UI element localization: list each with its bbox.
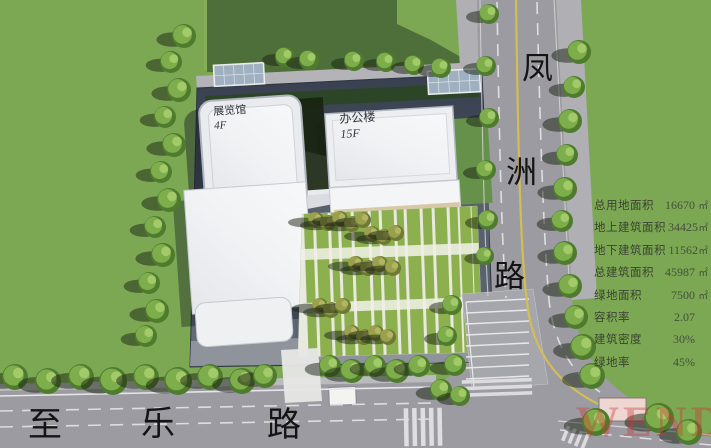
fengzhou-road-label-char: 洲 <box>506 157 537 188</box>
stat-unit: ㎡ <box>698 243 708 257</box>
stat-unit: ㎡ <box>695 198 708 212</box>
exhibition-hall-label: 展览馆 4F <box>213 104 248 133</box>
zhile-road-label-char: 路 <box>267 409 301 443</box>
stat-unit: ㎡ <box>695 288 708 302</box>
stat-row: 总用地面积16670㎡ <box>594 197 708 219</box>
fengzhou-road-label-char: 凤 <box>522 53 553 84</box>
stat-label: 容积率 <box>594 309 663 325</box>
stat-label: 总用地面积 <box>594 197 663 213</box>
site-plan-rendering: 凤 洲 路 至 乐 路 展览馆 4F 办公楼 15F 总用地面积16670㎡ 地… <box>0 0 711 448</box>
stat-value: 11562 <box>666 243 698 258</box>
zhile-road-label-char: 乐 <box>141 408 175 442</box>
office-building-floors: 15F <box>340 125 377 142</box>
stat-value: 2.07 <box>663 310 695 325</box>
exhibition-hall-name: 展览馆 <box>213 104 247 120</box>
stat-unit: ㎡ <box>698 220 708 234</box>
office-building-label: 办公楼 15F <box>339 110 377 142</box>
stat-row: 地下建筑面积11562㎡ <box>594 242 708 264</box>
office-building-name: 办公楼 <box>339 110 376 127</box>
fengzhou-road-label-char: 路 <box>494 261 525 292</box>
stat-row: 绿地率45% <box>594 354 708 376</box>
stat-row: 绿地面积7500㎡ <box>594 287 708 309</box>
stat-label: 建筑密度 <box>594 331 663 347</box>
stat-value: 45987 <box>663 265 695 280</box>
stat-label: 绿地面积 <box>594 287 663 303</box>
stat-value: 45% <box>663 355 695 370</box>
bus-shelter <box>213 63 264 87</box>
stat-value: 34425 <box>666 220 698 235</box>
watermark: WEND <box>576 398 711 447</box>
stat-label: 绿地率 <box>594 354 663 370</box>
exhibition-hall-floors: 4F <box>214 118 248 134</box>
stat-label: 地上建筑面积 <box>594 219 666 235</box>
project-statistics: 总用地面积16670㎡ 地上建筑面积34425㎡ 地下建筑面积11562㎡ 总建… <box>594 197 708 376</box>
stat-label: 总建筑面积 <box>594 264 663 280</box>
zhile-road-label-char: 至 <box>28 409 62 443</box>
stat-value: 30% <box>663 332 695 347</box>
stat-row: 总建筑面积45987㎡ <box>594 264 708 286</box>
stat-row: 地上建筑面积34425㎡ <box>594 219 708 241</box>
stat-value: 16670 <box>663 198 695 213</box>
stat-row: 容积率2.07 <box>594 309 708 331</box>
stat-label: 地下建筑面积 <box>594 242 666 258</box>
stat-row: 建筑密度30% <box>594 331 708 353</box>
stat-unit: ㎡ <box>695 265 708 279</box>
stat-value: 7500 <box>663 288 695 303</box>
